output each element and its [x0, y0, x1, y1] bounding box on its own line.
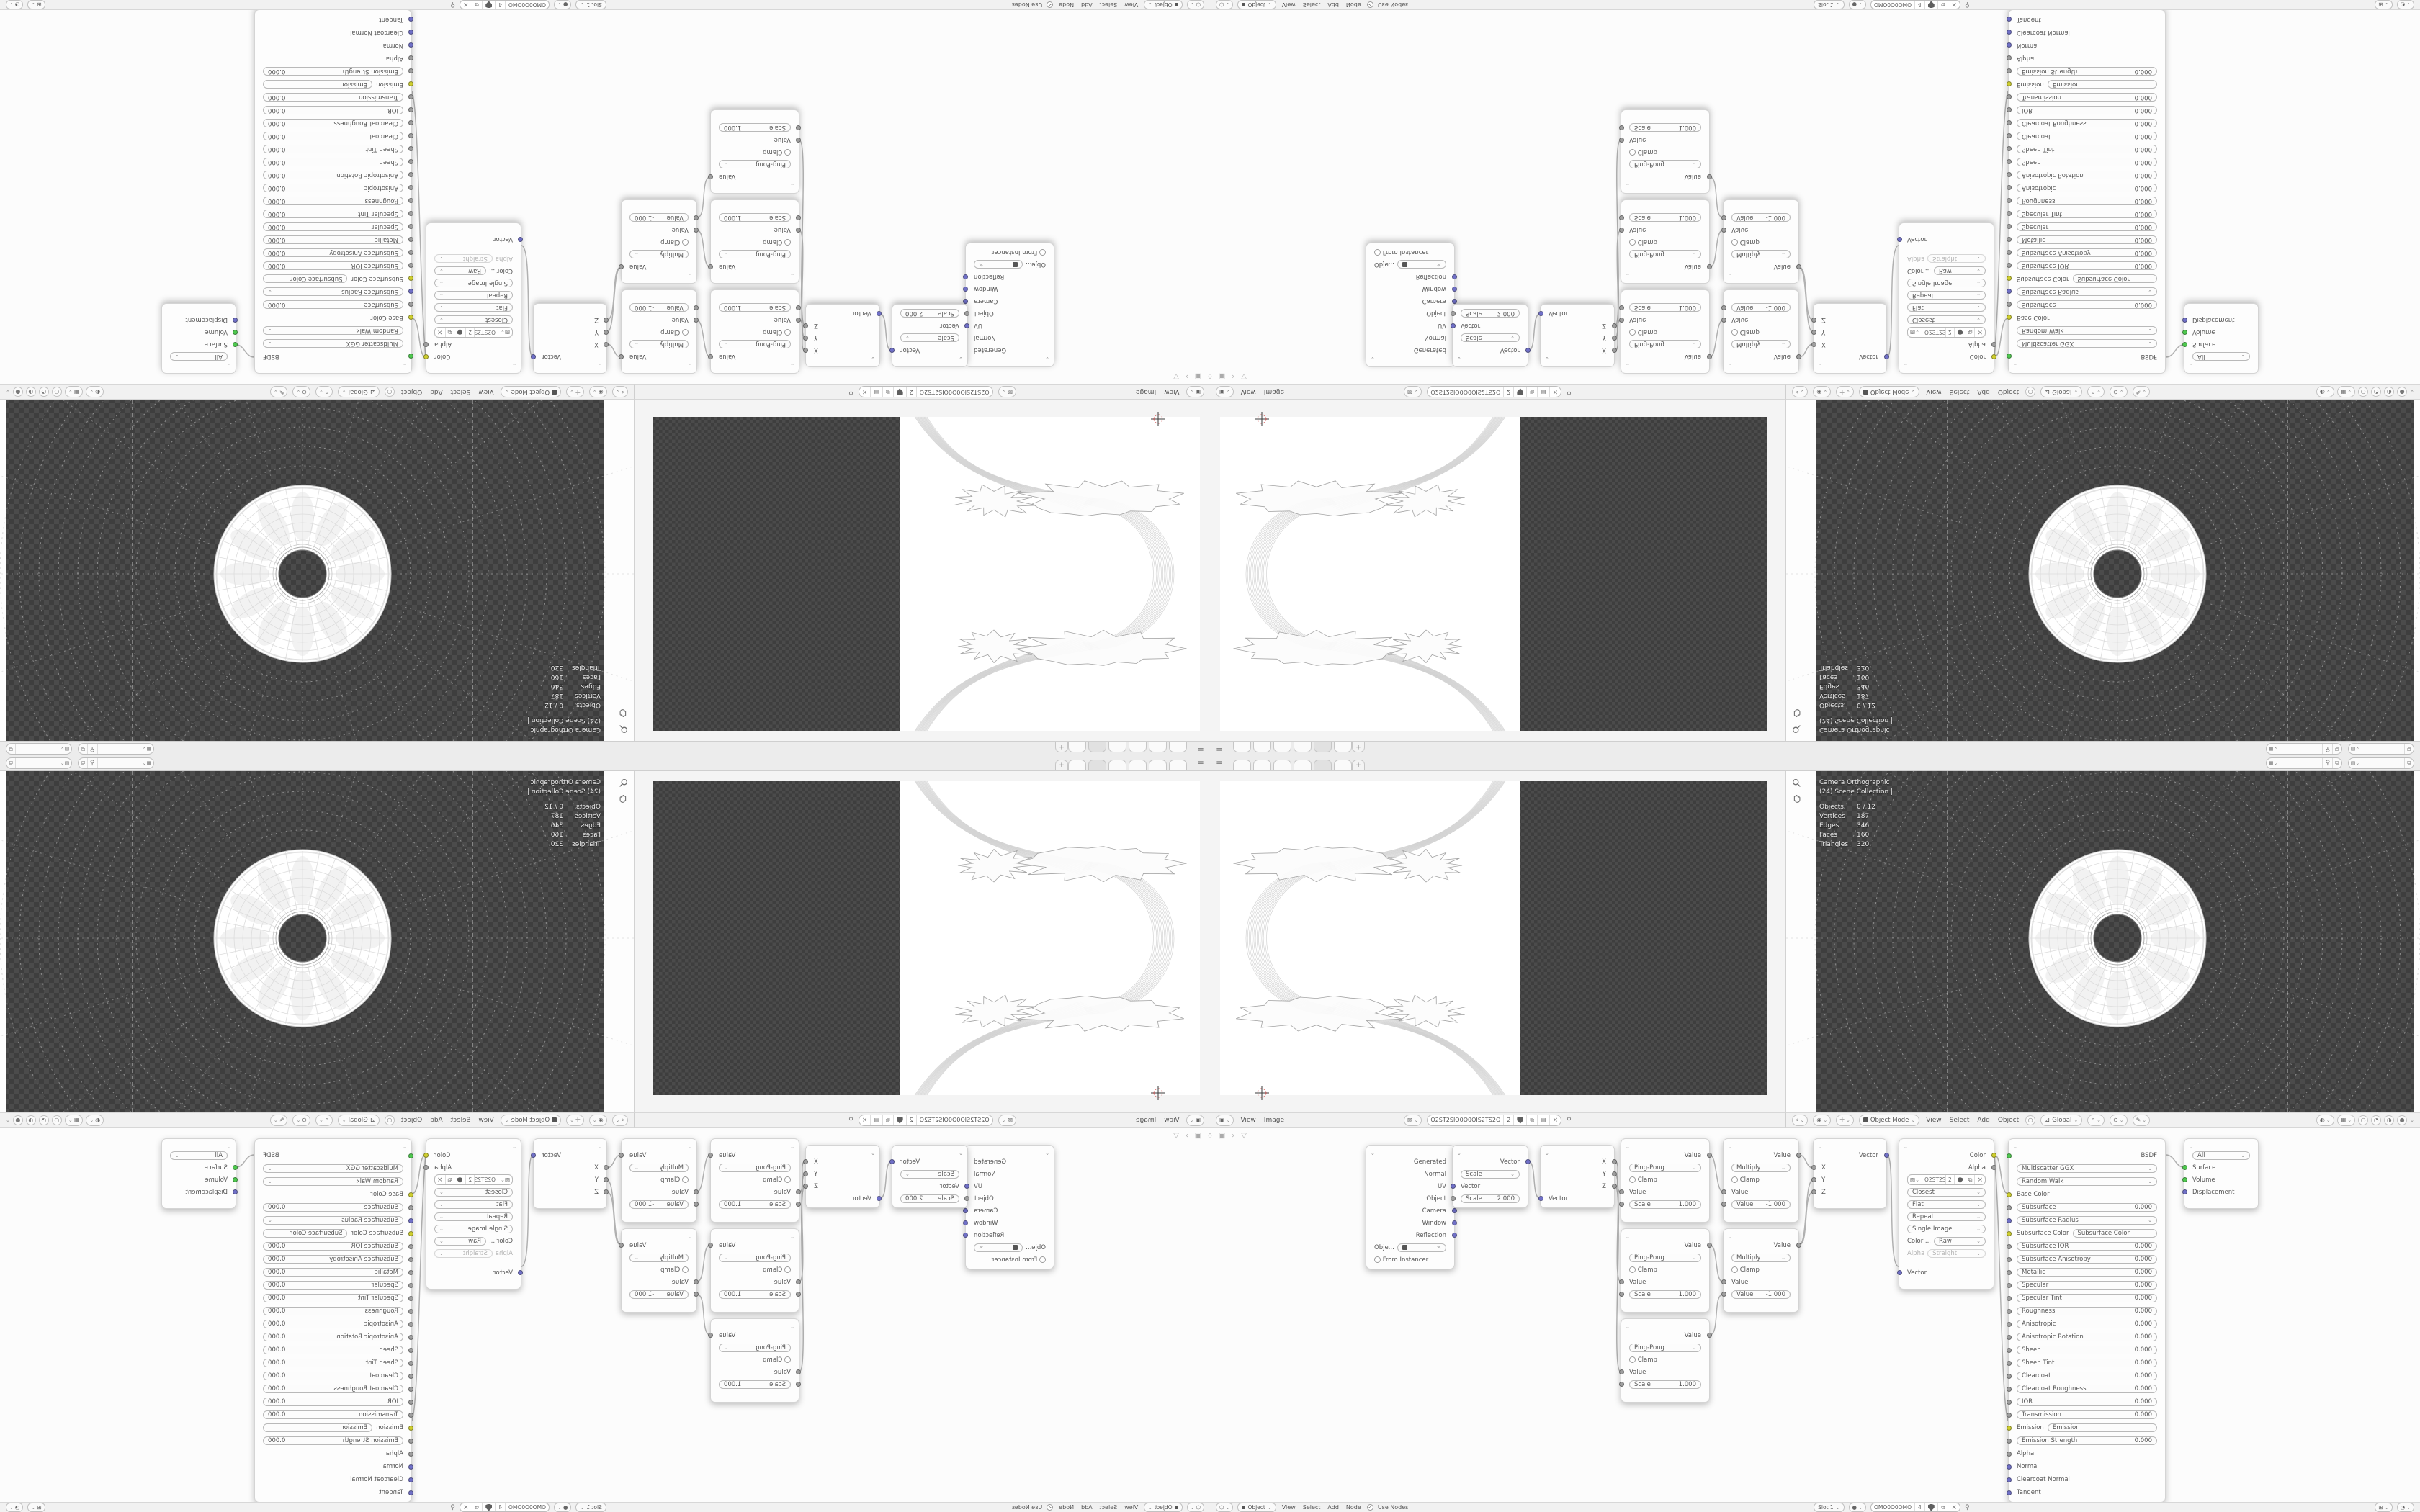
search-icon[interactable]: ○ — [385, 387, 395, 397]
from-instancer-checkbox[interactable]: From Instancer — [1366, 1254, 1454, 1266]
node-combine-xyz[interactable]: Vector XYZ — [1813, 1138, 1887, 1209]
menu-item[interactable]: Add — [1080, 1504, 1094, 1511]
unlink-icon[interactable] — [859, 387, 871, 397]
principled-row[interactable]: Sheen Sheen0.000 — [2009, 156, 2165, 168]
render-preview-icon[interactable]: ◉ — [589, 387, 607, 398]
operation-dropdown[interactable]: Multiply — [622, 1251, 696, 1264]
output-socket-row[interactable]: Reflection — [1366, 271, 1454, 283]
principled-row[interactable]: Random Walk Random Walk — [255, 324, 411, 337]
new-workspace-button[interactable]: + — [1055, 760, 1068, 770]
proportional-edit-icon[interactable]: ⊙ — [292, 1115, 310, 1126]
principled-row[interactable]: Normal Normal — [255, 1460, 411, 1473]
target-dropdown[interactable]: All — [2184, 1149, 2258, 1161]
principled-row[interactable]: Specular Specular0.000 — [255, 220, 411, 233]
node-math-multiply-1[interactable]: Value Multiply Clamp Value Value-1.000 — [1723, 1138, 1799, 1223]
principled-row[interactable]: Normal Normal — [255, 39, 411, 52]
menu-item[interactable]: Add — [1326, 1504, 1340, 1511]
pack-icon[interactable] — [871, 1115, 883, 1125]
output-socket-row[interactable]: Generated — [1366, 344, 1454, 356]
pin-icon[interactable] — [1567, 1117, 1572, 1124]
principled-row[interactable]: Emission Strength Emission Strength0.000 — [2009, 1434, 2165, 1447]
principled-row[interactable]: Metallic Metallic0.000 — [2009, 233, 2165, 246]
pack-icon[interactable] — [871, 387, 883, 397]
annotate-icon[interactable]: ✎ — [270, 1115, 288, 1126]
alpha-mode-row[interactable]: AlphaStraight — [1899, 253, 1994, 265]
proportional-edit-icon[interactable]: ⊙ — [292, 387, 310, 398]
node-math-pingpong-3[interactable]: Value Ping-Pong Clamp Value Scale1.000 — [710, 109, 799, 194]
pan-hand-icon[interactable] — [619, 793, 628, 803]
pack-icon[interactable] — [1537, 1115, 1549, 1125]
unlink-icon[interactable] — [1974, 1175, 1985, 1184]
workspace-tab[interactable] — [1314, 742, 1332, 752]
menu-item[interactable]: View — [477, 1117, 495, 1124]
principled-row[interactable]: Normal Normal — [2009, 39, 2165, 52]
transform-orientation-dropdown[interactable]: ⊿Global — [338, 387, 380, 398]
principled-row[interactable]: Subsurface IOR Subsurface IOR0.000 — [255, 259, 411, 272]
principled-row[interactable]: Alpha Alpha — [2009, 1447, 2165, 1460]
browse-material-icon[interactable]: ● — [554, 0, 571, 9]
node-math-multiply-2[interactable]: Value Multiply Clamp Value Value-1.000 — [1723, 1228, 1799, 1313]
cursor-tool-icon[interactable]: ⌖ — [1792, 1115, 1808, 1126]
editor-type-image-icon[interactable]: ▣ — [1186, 1115, 1204, 1126]
principled-row[interactable]: Clearcoat Normal Clearcoat Normal — [2009, 1473, 2165, 1486]
alpha-mode-row[interactable]: AlphaStraight — [1899, 1247, 1994, 1259]
clamp-checkbox[interactable]: Clamp — [1621, 146, 1709, 158]
node-separate-xyz[interactable]: XYZ Vector — [1540, 304, 1615, 367]
principled-row[interactable]: Subsurface Radius Subsurface Radius — [2009, 285, 2165, 298]
shading-solid-icon[interactable]: ◔ — [2371, 1115, 2381, 1125]
principled-row[interactable]: Sheen Sheen0.000 — [2009, 1344, 2165, 1356]
object-field-row[interactable]: Obje... — [966, 258, 1054, 271]
principled-row[interactable]: IOR IOR0.000 — [255, 104, 411, 117]
gizmo-icon[interactable]: ✛ — [566, 1115, 584, 1126]
shading-wireframe-icon[interactable]: ○ — [52, 1115, 62, 1125]
menu-item[interactable]: Select — [1301, 1, 1322, 8]
principled-row[interactable]: Clearcoat Normal Clearcoat Normal — [255, 26, 411, 39]
operation-dropdown[interactable]: Ping-Pong — [711, 248, 799, 261]
menu-item[interactable]: Select — [1098, 1, 1119, 8]
output-socket-row[interactable]: Object — [1366, 307, 1454, 320]
clamp-checkbox[interactable]: Clamp — [711, 1354, 799, 1366]
target-dropdown[interactable]: All — [162, 351, 236, 363]
node-image-texture[interactable]: Color Alpha ▨ O2ST2SIO0O0OIS2TS2O 2 Clos… — [426, 222, 521, 374]
output-socket-row[interactable]: Camera — [1366, 1205, 1454, 1217]
menu-item[interactable]: Add — [429, 389, 444, 396]
scene-selector[interactable]: ▦ — [2266, 743, 2342, 755]
filter-icon[interactable]: ▽ — [1241, 1132, 1247, 1140]
fake-user-icon[interactable] — [894, 387, 907, 397]
workspace-tab[interactable] — [1088, 760, 1106, 770]
output-socket-row[interactable]: Window — [966, 1217, 1054, 1229]
principled-row[interactable]: Clearcoat Roughness Clearcoat Roughness0… — [2009, 1382, 2165, 1395]
extension-dropdown[interactable]: Repeat — [1899, 289, 1994, 302]
node-texture-coordinate[interactable]: GeneratedNormalUVObjectCameraWindowRefle… — [1366, 1145, 1455, 1269]
output-socket-row[interactable]: X — [1541, 344, 1614, 356]
node-combine-xyz[interactable]: Vector XYZ — [533, 1138, 607, 1209]
material-datablock[interactable]: OMO0O0OMO 4 — [1870, 1503, 1960, 1512]
menu-item[interactable]: Image — [1134, 1117, 1157, 1124]
menu-item[interactable]: View — [1123, 1504, 1139, 1511]
workspace-tab[interactable] — [1169, 742, 1187, 752]
node-image-texture[interactable]: Color Alpha ▨ O2ST2SIO0O0OIS2TS2O 2 Clos… — [1899, 1138, 1994, 1290]
visibility-icon[interactable]: ◐ — [2316, 387, 2334, 398]
shading-wireframe-icon[interactable]: ○ — [2358, 387, 2368, 397]
output-socket-row[interactable]: Z — [1541, 320, 1614, 332]
projection-dropdown[interactable]: Flat — [426, 1198, 521, 1210]
principled-row[interactable]: Clearcoat Roughness Clearcoat Roughness0… — [255, 1382, 411, 1395]
node-texture-coordinate[interactable]: GeneratedNormalUVObjectCameraWindowRefle… — [965, 243, 1054, 367]
overlays-icon[interactable]: ◔ — [6, 0, 23, 9]
pin-icon[interactable] — [88, 744, 98, 754]
operation-dropdown[interactable]: Scale — [1453, 1168, 1528, 1180]
shading-wireframe-icon[interactable]: ○ — [52, 387, 62, 397]
target-dropdown[interactable]: All — [2184, 351, 2258, 363]
operation-dropdown[interactable]: Scale — [892, 1168, 967, 1180]
node-separate-xyz[interactable]: XYZ Vector — [805, 304, 880, 367]
node-vector-math-scale[interactable]: Vector Scale Vector Scale2.000 — [1452, 1145, 1528, 1208]
node-image-texture[interactable]: Color Alpha ▨ O2ST2SIO0O0OIS2TS2O 2 Clos… — [1899, 222, 1994, 374]
gizmo-icon[interactable]: ✛ — [1836, 387, 1854, 398]
clamp-checkbox[interactable]: Clamp — [1724, 236, 1798, 248]
operation-dropdown[interactable]: Multiply — [1724, 338, 1798, 351]
principled-row[interactable]: Subsurface Subsurface0.000 — [255, 298, 411, 311]
object-field-row[interactable]: Obje... — [1366, 1241, 1454, 1254]
menu-item[interactable]: Node — [1057, 1, 1075, 8]
copy-icon[interactable] — [2404, 744, 2414, 754]
snap-icon[interactable]: ⊞ — [2375, 0, 2392, 9]
menu-icon[interactable]: ≡ — [1197, 759, 1204, 768]
clamp-checkbox[interactable]: Clamp — [711, 1264, 799, 1276]
zoom-icon[interactable] — [619, 724, 628, 734]
shader-type-dropdown[interactable]: Object — [1144, 1503, 1182, 1512]
clamp-checkbox[interactable]: Clamp — [622, 236, 696, 248]
overlays-icon[interactable]: ▦ — [65, 387, 83, 398]
node-material-output[interactable]: All Surface Volume Displacement — [2184, 1138, 2259, 1209]
menu-item[interactable]: Object — [1996, 389, 2020, 396]
snap-icon[interactable]: ⊞ — [27, 0, 45, 9]
shading-rendered-icon[interactable]: ● — [13, 1115, 23, 1125]
browse-image-icon[interactable]: ▨ — [1404, 1115, 1422, 1126]
browse-material-icon[interactable]: ● — [1849, 0, 1866, 9]
source-dropdown[interactable]: Single Image — [1899, 277, 1994, 289]
node-math-multiply-1[interactable]: Value Multiply Clamp Value Value-1.000 — [621, 1138, 697, 1223]
principled-row[interactable]: Anisotropic Anisotropic0.000 — [255, 1318, 411, 1331]
use-nodes-checkbox[interactable]: ✓ — [1047, 1, 1053, 8]
cursor-tool-icon[interactable]: ⌖ — [1792, 387, 1808, 398]
node-math-pingpong-2[interactable]: Value Ping-Pong Clamp Value Scale1.000 — [710, 199, 799, 284]
copy-icon[interactable] — [883, 1115, 894, 1125]
menu-item[interactable]: Node — [1345, 1, 1363, 8]
shader-node-editor[interactable]: ◐ ▣ › ▽ GeneratedNorm — [1210, 10, 2420, 384]
node-math-pingpong-3[interactable]: Value Ping-Pong Clamp Value Scale1.000 — [1621, 109, 1710, 194]
snap-icon[interactable]: ⊞ — [27, 1503, 45, 1512]
node-header[interactable] — [966, 356, 1054, 366]
search-icon[interactable]: ○ — [2025, 387, 2035, 397]
menu-item[interactable]: Add — [1976, 389, 1991, 396]
image-datablock-chips[interactable]: ▨ O2ST2SIO0O0OIS2TS2O 2 — [1899, 326, 1994, 338]
input-socket-row[interactable]: Z — [534, 314, 606, 326]
scene-selector[interactable]: ▦ — [78, 743, 154, 755]
node-math-multiply-2[interactable]: Value Multiply Clamp Value Value-1.000 — [1723, 199, 1799, 284]
workspace-tab[interactable] — [1294, 760, 1312, 770]
pin-icon[interactable] — [450, 1504, 455, 1511]
output-socket-row[interactable]: Window — [1366, 1217, 1454, 1229]
principled-row[interactable]: Specular Specular0.000 — [2009, 220, 2165, 233]
node-principled-bsdf[interactable]: BSDF BSDF Multiscatter GGX Multiscatter … — [254, 10, 412, 374]
input-socket-row[interactable]: X — [1814, 1161, 1886, 1174]
principled-row[interactable]: Metallic Metallic0.000 — [255, 233, 411, 246]
menu-item[interactable]: Object — [400, 389, 423, 396]
menu-item[interactable]: View — [1924, 389, 1942, 396]
object-field-row[interactable]: Obje... — [1366, 258, 1454, 271]
pin-icon[interactable] — [1965, 1, 1970, 9]
source-dropdown[interactable]: Single Image — [426, 1223, 521, 1235]
output-socket-row[interactable]: Z — [1541, 1180, 1614, 1192]
editor-type-image-icon[interactable]: ▣ — [1216, 387, 1234, 398]
principled-row[interactable]: Clearcoat Roughness Clearcoat Roughness0… — [255, 117, 411, 130]
principled-row[interactable]: BSDF BSDF — [255, 1149, 411, 1162]
output-socket-row[interactable]: Normal — [966, 332, 1054, 344]
annotate-icon[interactable]: ✎ — [2133, 1115, 2151, 1126]
interpolation-dropdown[interactable]: Closest — [426, 1186, 521, 1198]
output-socket-row[interactable]: Y — [1541, 1168, 1614, 1180]
pin-icon[interactable] — [88, 758, 98, 768]
visibility-icon[interactable]: ◐ — [2316, 1115, 2334, 1126]
operation-dropdown[interactable]: Ping-Pong — [1621, 158, 1709, 171]
output-socket-row[interactable]: Normal — [1366, 332, 1454, 344]
workspace-tab[interactable] — [1273, 742, 1291, 752]
menu-item[interactable]: View — [1281, 1504, 1297, 1511]
input-socket-row[interactable]: X — [534, 338, 606, 351]
principled-row[interactable]: Metallic Metallic0.000 — [2009, 1266, 2165, 1279]
scene-selector[interactable]: ▦ — [2266, 757, 2342, 769]
operation-dropdown[interactable]: Scale — [1453, 332, 1528, 344]
principled-row[interactable]: Subsurface Subsurface0.000 — [2009, 298, 2165, 311]
output-socket-row[interactable]: Y — [806, 1168, 879, 1180]
principled-row[interactable]: Subsurface Anisotropy Subsurface Anisotr… — [2009, 246, 2165, 259]
principled-row[interactable]: Emission Emission — [255, 78, 411, 91]
principled-row[interactable]: Random Walk Random Walk — [2009, 324, 2165, 337]
scene-name-field[interactable] — [2280, 744, 2322, 754]
view-layer-name-field[interactable] — [2362, 758, 2404, 768]
principled-row[interactable]: Subsurface IOR Subsurface IOR0.000 — [255, 1240, 411, 1253]
operation-dropdown[interactable]: Multiply — [1724, 1251, 1798, 1264]
zoom-icon[interactable] — [1792, 778, 1801, 788]
principled-row[interactable]: Specular Tint Specular Tint0.000 — [255, 207, 411, 220]
browse-image-icon[interactable]: ▨ — [998, 387, 1016, 398]
workspace-tab[interactable] — [1129, 760, 1147, 770]
output-socket-row[interactable]: Reflection — [1366, 1229, 1454, 1241]
image-editor-area[interactable] — [634, 400, 1210, 741]
principled-row[interactable]: Subsurface Color Subsurface Color — [2009, 272, 2165, 285]
unlink-icon[interactable] — [859, 1115, 871, 1125]
scene-name-field[interactable] — [98, 758, 140, 768]
principled-row[interactable]: Transmission Transmission0.000 — [2009, 91, 2165, 104]
browse-image-icon[interactable]: ▨ — [498, 1175, 512, 1184]
output-socket-row[interactable]: Window — [1366, 283, 1454, 295]
principled-row[interactable]: Transmission Transmission0.000 — [255, 91, 411, 104]
mode-dropdown[interactable]: Object Mode — [1859, 387, 1919, 398]
node-principled-bsdf[interactable]: BSDF BSDF Multiscatter GGX Multiscatter … — [2008, 1138, 2166, 1502]
node-math-pingpong-2[interactable]: Value Ping-Pong Clamp Value Scale1.000 — [1621, 1228, 1710, 1313]
clamp-checkbox[interactable]: Clamp — [1724, 1174, 1798, 1186]
output-socket-row[interactable]: Camera — [966, 1205, 1054, 1217]
extension-dropdown[interactable]: Repeat — [426, 289, 521, 302]
editor-type-node-icon[interactable]: ⬡ — [1216, 1503, 1233, 1512]
output-socket-row[interactable]: Generated — [966, 1156, 1054, 1168]
principled-row[interactable]: IOR IOR0.000 — [2009, 104, 2165, 117]
operation-dropdown[interactable]: Multiply — [622, 338, 696, 351]
overlays-icon[interactable]: ◔ — [6, 1503, 23, 1512]
pin-icon[interactable] — [848, 389, 853, 396]
unlink-icon[interactable] — [1549, 1115, 1561, 1125]
node-math-pingpong-1[interactable]: Value Ping-Pong Clamp Value Scale1.000 — [1621, 289, 1710, 374]
node-vector-math-scale[interactable]: Vector Scale Vector Scale2.000 — [892, 1145, 968, 1208]
copy-icon[interactable] — [472, 1, 483, 9]
principled-row[interactable]: Roughness Roughness0.000 — [2009, 1305, 2165, 1318]
copy-icon[interactable] — [2332, 744, 2341, 754]
clamp-checkbox[interactable]: Clamp — [1621, 236, 1709, 248]
source-dropdown[interactable]: Single Image — [1899, 1223, 1994, 1235]
principled-row[interactable]: Emission Emission — [2009, 78, 2165, 91]
principled-row[interactable]: Anisotropic Rotation Anisotropic Rotatio… — [2009, 1331, 2165, 1344]
node-material-output[interactable]: All Surface Volume Displacement — [2184, 303, 2259, 374]
new-workspace-button[interactable]: + — [1055, 742, 1068, 752]
principled-row[interactable]: Base Color Base Color — [2009, 311, 2165, 324]
editor-type-node-icon[interactable]: ⬡ — [1187, 0, 1204, 9]
image-editor-area[interactable] — [1210, 400, 1786, 741]
visibility-icon[interactable]: ◐ — [86, 1115, 104, 1126]
fake-user-icon[interactable] — [1924, 1, 1937, 9]
material-slot-dropdown[interactable]: Slot 1 — [1814, 1503, 1844, 1512]
principled-row[interactable]: Subsurface Radius Subsurface Radius — [2009, 1214, 2165, 1227]
shading-solid-icon[interactable]: ◔ — [39, 1115, 49, 1125]
node-combine-xyz[interactable]: Vector XYZ — [1813, 303, 1887, 374]
principled-row[interactable]: Anisotropic Anisotropic0.000 — [2009, 1318, 2165, 1331]
snap-icon[interactable]: ⊞ — [2375, 1503, 2392, 1512]
input-socket-row[interactable]: X — [1814, 338, 1886, 351]
visibility-icon[interactable]: ◐ — [86, 387, 104, 398]
input-socket-row[interactable]: Y — [1814, 326, 1886, 338]
cursor-tool-icon[interactable]: ⌖ — [612, 387, 628, 398]
principled-row[interactable]: Anisotropic Rotation Anisotropic Rotatio… — [255, 1331, 411, 1344]
filter-icon[interactable]: ▽ — [1241, 372, 1247, 380]
principled-row[interactable]: Clearcoat Clearcoat0.000 — [2009, 1369, 2165, 1382]
copy-icon[interactable] — [883, 387, 894, 397]
menu-item[interactable]: View — [1162, 389, 1180, 396]
interpolation-dropdown[interactable]: Closest — [1899, 314, 1994, 326]
clamp-checkbox[interactable]: Clamp — [1621, 1264, 1709, 1276]
output-socket-row[interactable]: Z — [806, 1180, 879, 1192]
view-layer-selector[interactable]: ▤ — [2348, 757, 2414, 769]
proportional-edit-icon[interactable]: ⊙ — [2110, 1115, 2128, 1126]
menu-item[interactable]: Add — [429, 1117, 444, 1124]
workspace-tab[interactable] — [1149, 760, 1167, 770]
shading-solid-icon[interactable]: ◔ — [39, 387, 49, 397]
menu-item[interactable]: View — [1239, 389, 1257, 396]
principled-row[interactable]: Subsurface Color Subsurface Color — [255, 272, 411, 285]
principled-row[interactable]: Multiscatter GGX Multiscatter GGX — [255, 1162, 411, 1175]
input-socket-row[interactable]: Z — [1814, 314, 1886, 326]
principled-row[interactable]: Random Walk Random Walk — [2009, 1175, 2165, 1188]
output-socket-row[interactable]: Generated — [966, 344, 1054, 356]
clamp-checkbox[interactable]: Clamp — [711, 146, 799, 158]
copy-icon[interactable] — [1937, 1, 1948, 9]
shading-rendered-icon[interactable]: ● — [2397, 387, 2407, 397]
operation-dropdown[interactable]: Ping-Pong — [711, 338, 799, 351]
input-socket-row[interactable]: X — [534, 1161, 606, 1174]
operation-dropdown[interactable]: Ping-Pong — [1621, 248, 1709, 261]
overlays-icon[interactable]: ▦ — [2337, 1115, 2355, 1126]
output-socket-row[interactable]: Window — [966, 283, 1054, 295]
operation-dropdown[interactable]: Ping-Pong — [711, 158, 799, 171]
menu-item[interactable]: Select — [1948, 1117, 1971, 1124]
output-socket-row[interactable]: Camera — [966, 295, 1054, 307]
operation-dropdown[interactable]: Multiply — [1724, 248, 1798, 261]
fake-user-icon[interactable] — [483, 1503, 496, 1511]
node-principled-bsdf[interactable]: BSDF BSDF Multiscatter GGX Multiscatter … — [2008, 10, 2166, 374]
shading-wireframe-icon[interactable]: ○ — [2358, 1115, 2368, 1125]
browse-image-icon[interactable]: ▨ — [498, 328, 512, 337]
menu-item[interactable]: View — [1239, 1117, 1257, 1124]
fake-user-icon[interactable] — [454, 328, 466, 337]
fake-user-icon[interactable] — [454, 1175, 466, 1184]
browse-material-icon[interactable]: ● — [554, 1503, 571, 1512]
node-vector-math-scale[interactable]: Vector Scale Vector Scale2.000 — [892, 304, 968, 367]
principled-row[interactable]: Anisotropic Anisotropic0.000 — [255, 181, 411, 194]
operation-dropdown[interactable]: Ping-Pong — [1621, 1251, 1709, 1264]
image-datablock-chips[interactable]: ▨ O2ST2SIO0O0OIS2TS2O 2 — [1899, 1174, 1994, 1186]
pan-hand-icon[interactable] — [1792, 709, 1801, 719]
node-material-output[interactable]: All Surface Volume Displacement — [161, 1138, 236, 1209]
menu-item[interactable]: Add — [1326, 1, 1340, 8]
operation-dropdown[interactable]: Ping-Pong — [1621, 1341, 1709, 1354]
render-preview-icon[interactable]: ◉ — [1813, 1115, 1831, 1126]
pin-icon[interactable] — [2322, 744, 2332, 754]
node-math-multiply-1[interactable]: Value Multiply Clamp Value Value-1.000 — [621, 289, 697, 374]
use-nodes-checkbox[interactable]: ✓ — [1367, 1, 1373, 8]
workspace-tab[interactable] — [1314, 760, 1332, 770]
clamp-checkbox[interactable]: Clamp — [711, 1174, 799, 1186]
image-datablock[interactable]: O2ST2SIO0O0OIS2TS2O 2 — [859, 387, 993, 398]
pin-icon[interactable] — [1567, 389, 1572, 396]
new-workspace-button[interactable]: + — [1352, 742, 1365, 752]
copy-icon[interactable] — [446, 328, 455, 337]
workspace-tab[interactable] — [1334, 742, 1352, 752]
material-datablock[interactable]: OMO0O0OMO 4 — [460, 1503, 550, 1512]
projection-dropdown[interactable]: Flat — [1899, 302, 1994, 314]
filter-icon[interactable]: ▽ — [1173, 1132, 1179, 1140]
principled-row[interactable]: Roughness Roughness0.000 — [255, 1305, 411, 1318]
output-socket-row[interactable]: X — [806, 344, 879, 356]
workspace-tab[interactable] — [1253, 760, 1271, 770]
material-slot-dropdown[interactable]: Slot 1 — [575, 1503, 606, 1512]
principled-row[interactable]: Multiscatter GGX Multiscatter GGX — [2009, 1162, 2165, 1175]
principled-row[interactable]: Subsurface Radius Subsurface Radius — [255, 1214, 411, 1227]
from-instancer-checkbox[interactable]: From Instancer — [966, 1254, 1054, 1266]
output-socket-row[interactable]: X — [1541, 1156, 1614, 1168]
search-icon[interactable]: ○ — [2025, 1115, 2035, 1125]
transform-orientation-dropdown[interactable]: ⊿Global — [338, 1115, 380, 1126]
operation-dropdown[interactable]: Ping-Pong — [711, 1161, 799, 1174]
principled-row[interactable]: Multiscatter GGX Multiscatter GGX — [2009, 337, 2165, 350]
scene-name-field[interactable] — [98, 744, 140, 754]
menu-icon[interactable]: ≡ — [1197, 744, 1204, 753]
principled-row[interactable]: Emission Emission — [2009, 1421, 2165, 1434]
node-header[interactable] — [1366, 356, 1454, 366]
fake-user-icon[interactable] — [1513, 1115, 1526, 1125]
principled-row[interactable]: Sheen Tint Sheen Tint0.000 — [2009, 1356, 2165, 1369]
